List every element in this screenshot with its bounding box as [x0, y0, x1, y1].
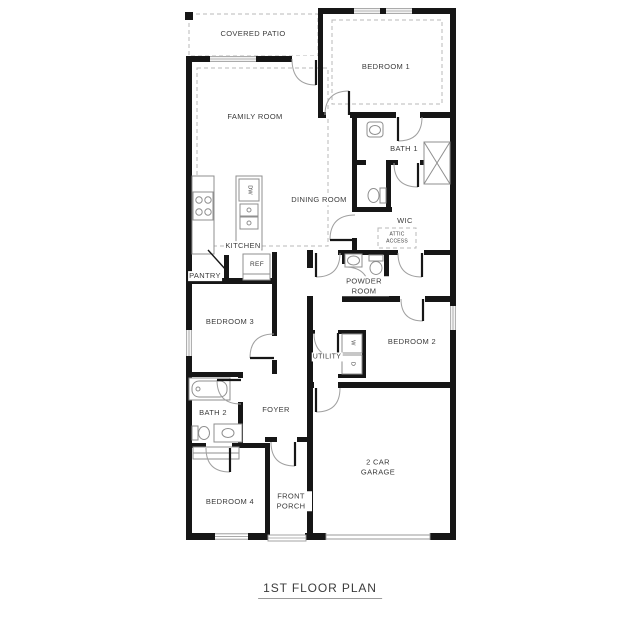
porch-edge	[268, 535, 306, 541]
garage-door	[326, 533, 430, 540]
fixtures	[189, 122, 450, 459]
powder-sink	[348, 256, 360, 265]
window	[186, 330, 192, 356]
bath1-sink	[370, 126, 381, 135]
wall-segment	[386, 160, 391, 212]
wall-segment	[362, 330, 366, 378]
bath2-toilet	[199, 427, 210, 440]
wall-segment	[430, 533, 456, 540]
sink-drain	[247, 208, 251, 212]
wall-segment	[352, 207, 392, 212]
window	[354, 8, 380, 14]
door-opening	[326, 112, 350, 118]
patio-post	[185, 12, 193, 20]
stove-burner	[205, 197, 211, 203]
room-label-covered-patio: COVERED PATIO	[219, 29, 286, 39]
label-dishwasher: DW	[245, 185, 252, 195]
door-arc	[330, 215, 355, 240]
door-arc	[292, 59, 316, 85]
label-washer: W	[348, 340, 355, 345]
powder-toilet-tank	[369, 255, 383, 261]
wall-segment	[186, 372, 242, 377]
wall-segment	[265, 437, 277, 442]
room-label-wic: WIC	[396, 216, 414, 226]
door-arc	[316, 253, 340, 277]
door-arc	[316, 388, 340, 412]
bath2-sink	[222, 429, 234, 438]
room-label-utility: UTILITY	[312, 352, 343, 361]
wall-segment	[342, 296, 456, 302]
room-label-bedroom1: BEDROOM 1	[361, 62, 411, 72]
wall-segment	[297, 437, 312, 442]
door-arc	[250, 334, 274, 358]
label-refrigerator: REF	[249, 261, 265, 269]
bath1-toilet	[368, 189, 379, 203]
walls	[185, 8, 456, 540]
door-arc	[398, 253, 422, 277]
door-opening	[314, 382, 338, 388]
door-arc	[401, 299, 423, 321]
pantry-door-diagonal	[208, 250, 226, 270]
wall-segment	[450, 8, 456, 540]
wall-segment	[338, 374, 366, 378]
window	[215, 533, 248, 540]
door-arc	[398, 117, 422, 141]
door-opening	[400, 296, 425, 302]
stove-burner	[196, 197, 202, 203]
stove-burner	[205, 209, 211, 215]
floor-plan-drawing	[0, 0, 640, 624]
door-arc	[394, 163, 418, 187]
door-opening	[398, 160, 420, 165]
window	[386, 8, 412, 14]
bathtub-drain	[196, 387, 200, 391]
room-label-family-room: FAMILY ROOM	[226, 112, 283, 122]
wall-segment	[186, 56, 192, 540]
room-label-bath2: BATH 2	[198, 408, 228, 418]
room-label-front-porch: FRONT PORCH	[270, 491, 312, 511]
label-dryer: D	[348, 362, 355, 366]
wall-segment	[338, 330, 366, 334]
stove-burner	[196, 209, 202, 215]
wall-segment	[272, 284, 277, 336]
stove	[193, 192, 213, 220]
bath1-toilet-tank	[380, 188, 386, 203]
room-label-bedroom4: BEDROOM 4	[205, 497, 255, 507]
room-label-bedroom3: BEDROOM 3	[205, 317, 255, 327]
door-opening	[352, 212, 357, 238]
wall-segment	[352, 160, 366, 165]
label-attic-access: ATTIC ACCESS	[380, 232, 414, 245]
wall-segment	[238, 372, 243, 378]
powder-toilet	[370, 262, 382, 275]
door-opening	[292, 56, 318, 62]
room-label-pantry: PANTRY	[188, 271, 222, 281]
floor-plan-title: 1ST FLOOR PLAN	[258, 581, 382, 599]
room-label-foyer: FOYER	[261, 405, 291, 415]
wall-segment	[307, 250, 313, 268]
sink-drain	[247, 221, 251, 225]
room-label-garage: 2 CAR GARAGE	[354, 457, 402, 477]
door-arc	[271, 442, 295, 466]
floor-plan-canvas: COVERED PATIO FAMILY ROOM BEDROOM 1 BATH…	[0, 0, 640, 624]
dashed-lines	[189, 14, 442, 248]
door-opening	[398, 250, 424, 255]
room-label-dining-room: DINING ROOM	[290, 195, 348, 205]
room-label-powder-room: POWDER ROOM	[339, 276, 389, 296]
window	[210, 56, 256, 62]
room-label-bath1: BATH 1	[389, 144, 419, 154]
room-label-bedroom2: BEDROOM 2	[387, 337, 437, 347]
room-label-kitchen: KITCHEN	[224, 241, 261, 251]
bath2-toilet-tank	[192, 426, 198, 440]
window	[450, 306, 456, 330]
door-arc	[325, 91, 349, 115]
wall-segment	[318, 8, 323, 118]
door-opening	[396, 112, 420, 118]
wall-segment	[272, 360, 277, 374]
wall-segment	[272, 252, 277, 284]
